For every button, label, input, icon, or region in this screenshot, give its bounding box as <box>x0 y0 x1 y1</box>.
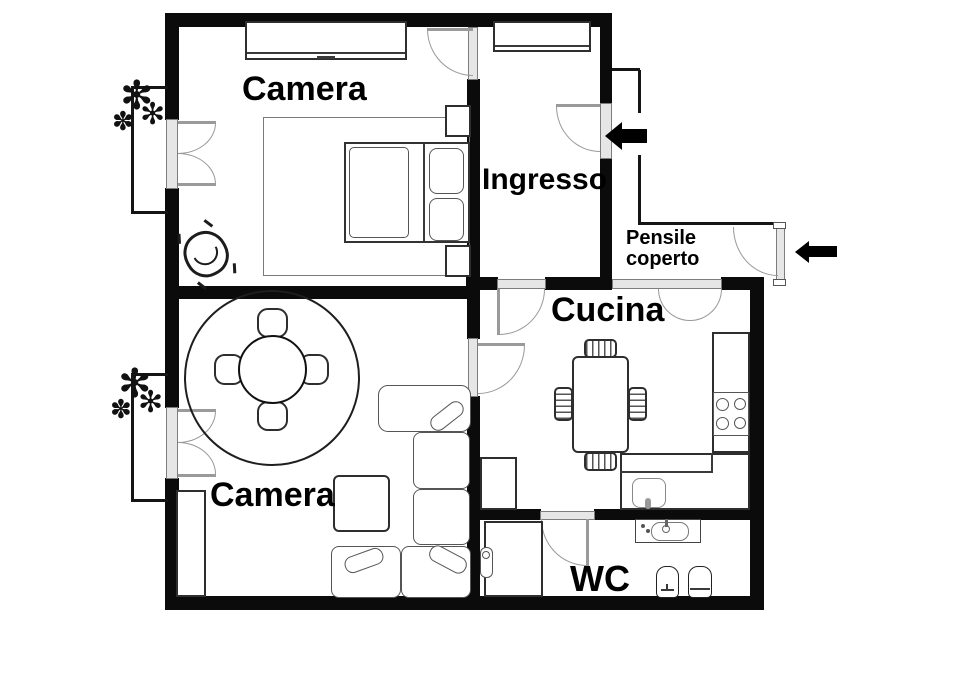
burner <box>716 417 729 430</box>
window-swing-arc <box>178 153 216 184</box>
bidet <box>688 566 712 598</box>
toilet-line <box>666 584 668 590</box>
dining-chair <box>257 401 288 431</box>
coffee-table <box>333 475 390 532</box>
door-swing-arc <box>556 106 600 152</box>
counter-line <box>711 453 713 473</box>
wardrobe-line <box>247 52 405 54</box>
bed-pillow <box>429 198 464 241</box>
kitchen-chair <box>584 452 617 471</box>
balcony-bottom-rail <box>131 499 168 502</box>
sofa-seat <box>413 432 470 489</box>
door-swing-arc <box>499 289 545 335</box>
landing-rail <box>638 70 641 113</box>
closet <box>493 21 591 52</box>
landing-rail <box>638 155 641 225</box>
window-swing-arc <box>178 442 216 474</box>
burner <box>734 417 746 429</box>
door-frame-kitchen <box>497 279 546 289</box>
bed-pillow <box>429 148 464 194</box>
dining-chair <box>257 308 288 338</box>
soap-dot <box>641 524 645 528</box>
wc-faucet-stub <box>665 519 668 527</box>
kitchen-table <box>572 356 629 453</box>
wall-kitchen-top-b <box>545 277 612 290</box>
wall-bottom <box>165 596 764 610</box>
room-label-cucina: Cucina <box>551 293 664 329</box>
toilet <box>656 566 679 598</box>
room-label-wc: WC <box>570 560 630 598</box>
closet-line <box>495 45 589 47</box>
burner <box>716 398 729 411</box>
window-swing-arc <box>178 123 216 154</box>
window-frame-kitchen <box>612 279 722 289</box>
fridge <box>480 457 517 510</box>
door-swing-arc <box>427 29 473 76</box>
nightstand <box>445 105 471 137</box>
bed-blanket <box>349 147 409 238</box>
floor-plan: ✻✻✽ ✻✻✽ <box>0 0 960 679</box>
kitchen-chair <box>554 387 573 421</box>
wall-rooms-divider <box>165 286 480 299</box>
wardrobe-handle <box>317 56 335 59</box>
balcony-top-rail <box>131 211 168 214</box>
kitchen-faucet <box>645 498 651 509</box>
door-swing-arc <box>478 345 525 394</box>
terrace-rail <box>638 222 786 225</box>
shower-knob <box>482 551 490 559</box>
sofa-seat <box>413 489 470 545</box>
bed-line <box>423 144 425 241</box>
room-label-ingresso: Ingresso <box>482 164 607 196</box>
wall-kitchen-top-a <box>466 277 498 290</box>
wardrobe <box>245 21 407 60</box>
room-label-pensile-line2: coperto <box>626 249 699 270</box>
armchair <box>170 218 241 290</box>
soap-dot <box>646 529 650 533</box>
landing-rail <box>612 68 640 71</box>
door-swing-arc <box>690 289 722 321</box>
door-swing-arc <box>733 227 778 276</box>
wall-right <box>750 277 764 610</box>
wall-ingresso-right-a <box>600 13 612 105</box>
room-label-pensile-line1: Pensile <box>626 228 696 249</box>
wall-kitchen-top-c <box>721 277 764 290</box>
wardrobe <box>176 490 206 597</box>
kitchen-chair <box>628 387 647 421</box>
burner <box>734 398 746 410</box>
wall-wc-top-a <box>480 509 541 520</box>
counter-line <box>620 471 712 473</box>
round-table <box>238 335 307 404</box>
plant-icon: ✻✻✽ <box>110 364 170 444</box>
plant-icon: ✻✻✽ <box>112 76 172 156</box>
room-label-camera-bottom: Camera <box>210 478 335 514</box>
room-label-camera-top: Camera <box>242 72 367 108</box>
terrace-door-cap <box>773 279 786 286</box>
door-frame-camera-bottom <box>468 338 478 397</box>
nightstand <box>445 245 471 277</box>
bidet-line <box>690 588 710 590</box>
wc-sink-basin <box>651 522 689 541</box>
